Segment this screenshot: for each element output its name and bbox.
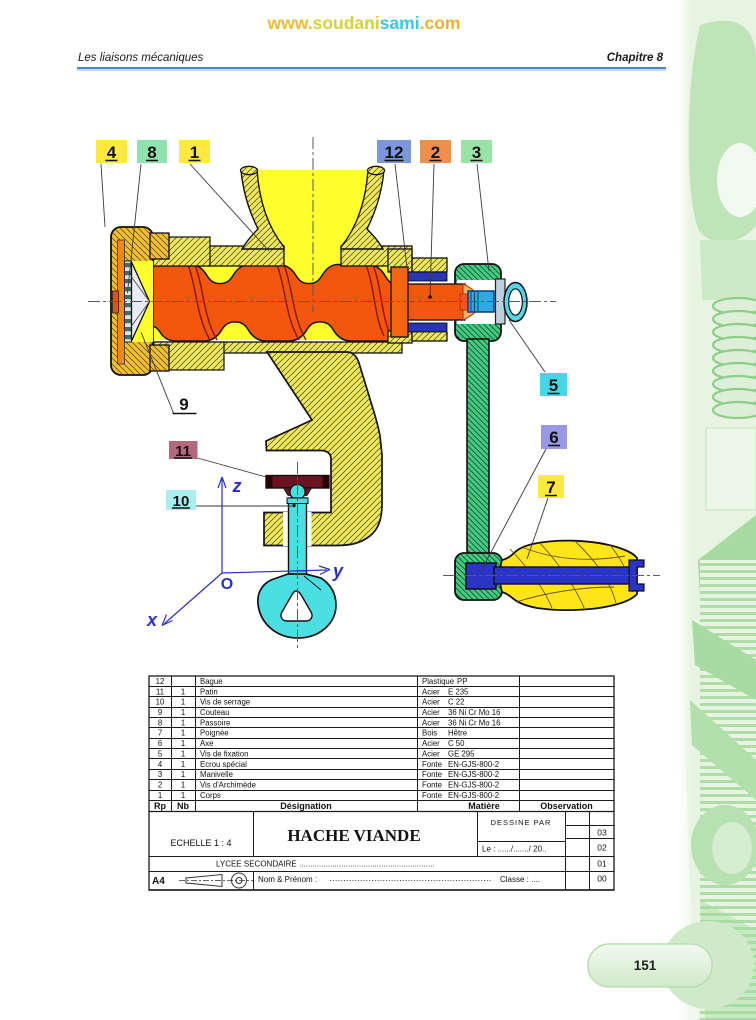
svg-text:Plastique: Plastique <box>422 677 454 686</box>
svg-text:00: 00 <box>597 874 607 884</box>
svg-text:Observation: Observation <box>540 801 593 811</box>
svg-text:1: 1 <box>181 781 185 790</box>
svg-text:03: 03 <box>597 828 607 838</box>
svg-text:GE 295: GE 295 <box>448 749 475 758</box>
svg-text:3: 3 <box>158 770 162 779</box>
svg-text:Classe : ....: Classe : .... <box>500 875 540 884</box>
svg-text:Bague: Bague <box>200 677 223 686</box>
svg-text:Bois: Bois <box>422 729 437 738</box>
svg-text:PP: PP <box>457 677 467 686</box>
svg-text:1: 1 <box>181 718 185 727</box>
svg-text:Matière: Matière <box>468 801 500 811</box>
svg-text:EN-GJS-800-2: EN-GJS-800-2 <box>448 791 499 800</box>
svg-text:Acier: Acier <box>422 749 440 758</box>
svg-text:1: 1 <box>181 760 185 769</box>
svg-text:Nb: Nb <box>177 801 189 811</box>
svg-text:Ecrou spécial: Ecrou spécial <box>200 760 247 769</box>
svg-text:DESSINE PAR: DESSINE PAR <box>491 818 552 827</box>
svg-text:1: 1 <box>158 791 162 800</box>
svg-text:11: 11 <box>156 687 164 696</box>
svg-text:Acier: Acier <box>422 708 440 717</box>
svg-text:1: 1 <box>181 729 185 738</box>
svg-text:Acier: Acier <box>422 687 440 696</box>
svg-text:EN-GJS-800-2: EN-GJS-800-2 <box>448 760 499 769</box>
svg-text:Rp: Rp <box>154 801 166 811</box>
svg-text:Acier: Acier <box>422 698 440 707</box>
svg-text:9: 9 <box>158 708 162 717</box>
svg-text:4: 4 <box>158 760 163 769</box>
svg-text:12: 12 <box>156 677 165 686</box>
svg-text:Vis de fixation: Vis de fixation <box>200 749 248 758</box>
svg-text:Nom & Prénom :: Nom & Prénom : <box>258 875 317 884</box>
svg-text:Vis de serrage: Vis de serrage <box>200 698 250 707</box>
svg-text:7: 7 <box>158 729 162 738</box>
svg-text:01: 01 <box>597 859 607 869</box>
svg-text:Désignation: Désignation <box>280 801 332 811</box>
svg-text:E 235: E 235 <box>448 687 469 696</box>
svg-text:2: 2 <box>158 781 162 790</box>
svg-text:A4: A4 <box>152 876 165 887</box>
svg-text:1: 1 <box>181 698 185 707</box>
svg-text:HACHE VIANDE: HACHE VIANDE <box>287 826 420 845</box>
svg-text:Le : ....../......./ 20..: Le : ....../......./ 20.. <box>482 845 546 854</box>
svg-text:Vis d'Archimède: Vis d'Archimède <box>200 781 256 790</box>
svg-text:ECHELLE 1 : 4: ECHELLE 1 : 4 <box>170 838 231 848</box>
svg-text:02: 02 <box>597 843 607 853</box>
svg-text:C 50: C 50 <box>448 739 465 748</box>
svg-text:1: 1 <box>181 770 185 779</box>
svg-text:1: 1 <box>181 791 185 800</box>
svg-text:Hêtre: Hêtre <box>448 729 467 738</box>
svg-text:Patin: Patin <box>200 687 218 696</box>
svg-text:6: 6 <box>158 739 162 748</box>
svg-text:8: 8 <box>158 718 162 727</box>
svg-text:LYCEE SECONDAIRE .............: LYCEE SECONDAIRE .......................… <box>216 860 435 869</box>
svg-text:1: 1 <box>181 687 185 696</box>
svg-text:1: 1 <box>181 749 185 758</box>
svg-text:Fonte: Fonte <box>422 770 442 779</box>
svg-text:36 Ni Cr Mo 16: 36 Ni Cr Mo 16 <box>448 708 500 717</box>
svg-text:Fonte: Fonte <box>422 781 442 790</box>
svg-text:Corps: Corps <box>200 791 221 800</box>
svg-text:Fonte: Fonte <box>422 760 442 769</box>
svg-text:5: 5 <box>158 749 163 758</box>
svg-text:C 22: C 22 <box>448 698 464 707</box>
svg-text:Acier: Acier <box>422 718 440 727</box>
svg-text:Passoire: Passoire <box>200 718 230 727</box>
svg-text:36 Ni Cr Mo 16: 36 Ni Cr Mo 16 <box>448 718 500 727</box>
svg-text:1: 1 <box>181 739 185 748</box>
svg-text:EN-GJS-800-2: EN-GJS-800-2 <box>448 770 499 779</box>
svg-text:Fonte: Fonte <box>422 791 442 800</box>
svg-text:Acier: Acier <box>422 739 440 748</box>
svg-text:EN-GJS-800-2: EN-GJS-800-2 <box>448 781 499 790</box>
svg-text:Couteau: Couteau <box>200 708 229 717</box>
svg-text:10: 10 <box>156 698 165 707</box>
svg-text:1: 1 <box>181 708 185 717</box>
svg-text:Manivelle: Manivelle <box>200 770 233 779</box>
svg-text:Poignée: Poignée <box>200 729 229 738</box>
svg-text:Axe: Axe <box>200 739 213 748</box>
